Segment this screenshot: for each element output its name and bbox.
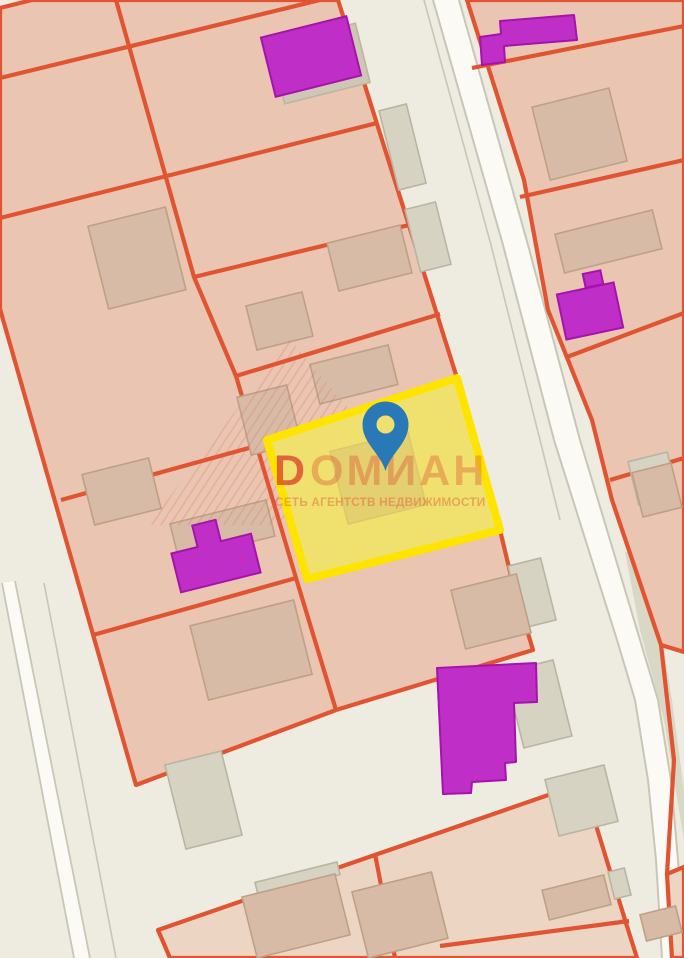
svg-text:СЕТЬ АГЕНТСТВ НЕДВИЖИМОСТИ: СЕТЬ АГЕНТСТВ НЕДВИЖИМОСТИ xyxy=(275,495,485,509)
svg-text:ОМИАН: ОМИАН xyxy=(310,447,487,495)
svg-text:D: D xyxy=(274,447,305,495)
